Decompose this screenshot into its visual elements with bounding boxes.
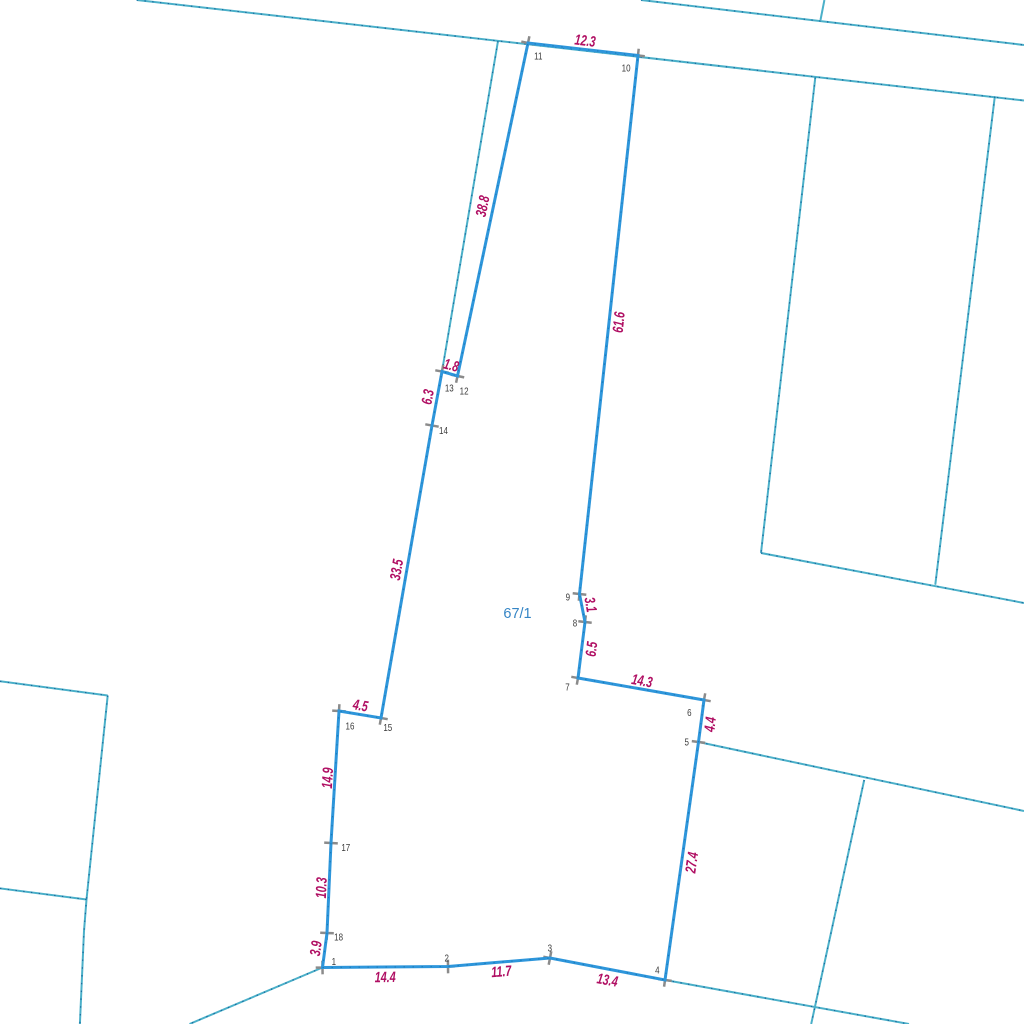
svg-text:10: 10 bbox=[622, 62, 631, 73]
svg-text:10.3: 10.3 bbox=[312, 876, 330, 898]
svg-text:16: 16 bbox=[346, 721, 355, 732]
svg-text:4: 4 bbox=[655, 965, 659, 976]
svg-text:33.5: 33.5 bbox=[386, 557, 407, 581]
svg-text:67/1: 67/1 bbox=[503, 606, 531, 622]
svg-text:9: 9 bbox=[566, 592, 570, 603]
svg-text:1: 1 bbox=[332, 956, 336, 967]
svg-text:14.4: 14.4 bbox=[375, 968, 397, 985]
svg-text:15: 15 bbox=[383, 722, 392, 733]
svg-text:3.1: 3.1 bbox=[581, 596, 601, 614]
svg-text:11: 11 bbox=[534, 51, 542, 62]
svg-text:13: 13 bbox=[445, 383, 454, 394]
svg-text:14.3: 14.3 bbox=[630, 670, 654, 691]
svg-text:61.6: 61.6 bbox=[609, 310, 628, 333]
svg-text:13.4: 13.4 bbox=[596, 970, 620, 991]
svg-text:8: 8 bbox=[573, 618, 577, 629]
svg-text:17: 17 bbox=[341, 842, 350, 853]
svg-text:2: 2 bbox=[444, 953, 448, 964]
svg-text:27.4: 27.4 bbox=[681, 850, 701, 875]
svg-text:5: 5 bbox=[684, 737, 688, 748]
svg-text:11.7: 11.7 bbox=[491, 962, 513, 981]
svg-text:3: 3 bbox=[548, 943, 552, 954]
svg-text:12.3: 12.3 bbox=[574, 31, 597, 51]
svg-text:14: 14 bbox=[439, 425, 448, 436]
svg-text:6: 6 bbox=[687, 707, 691, 718]
svg-text:6.5: 6.5 bbox=[582, 640, 601, 658]
svg-text:7: 7 bbox=[565, 682, 569, 693]
svg-text:14.9: 14.9 bbox=[318, 766, 337, 789]
svg-text:4.4: 4.4 bbox=[700, 715, 719, 733]
svg-text:18: 18 bbox=[334, 932, 343, 943]
svg-text:12: 12 bbox=[460, 386, 469, 397]
